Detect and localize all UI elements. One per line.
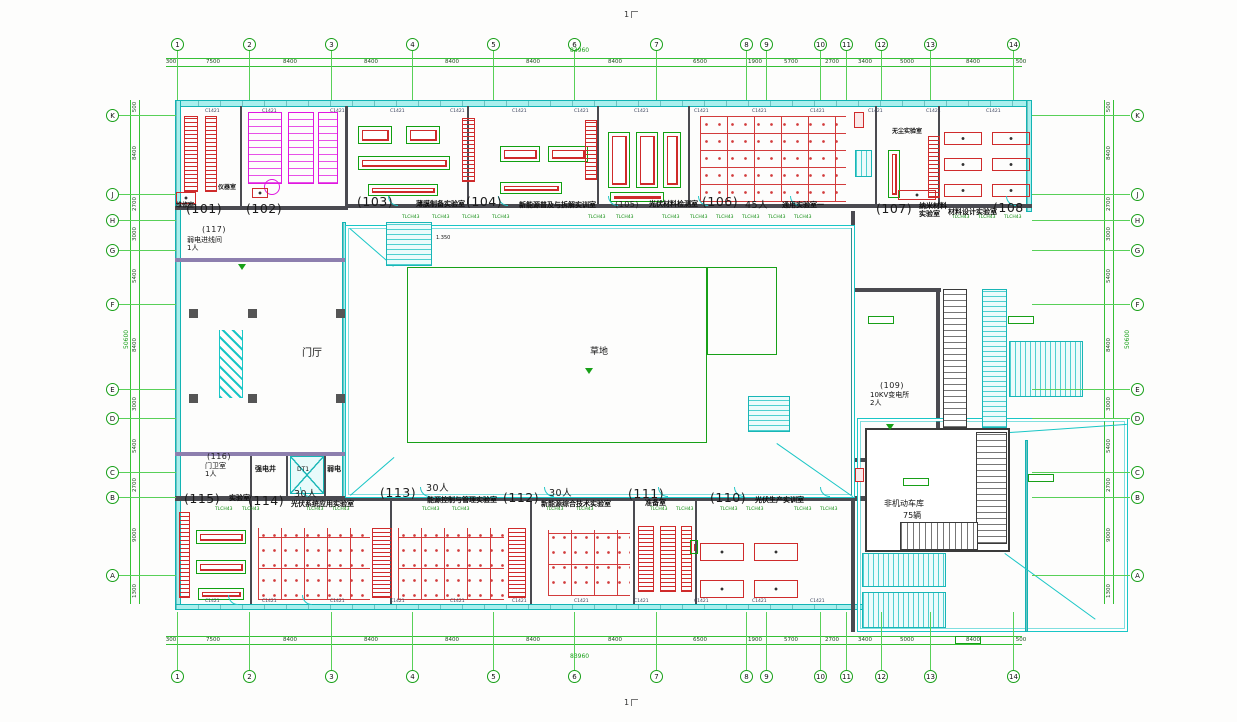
lab-bench (196, 530, 246, 544)
grid-line (119, 250, 176, 251)
exterior-wall (1025, 440, 1028, 632)
plan-label: 83960 (570, 654, 589, 661)
grid-bubble: 12 (875, 670, 888, 683)
grid-bubble: G (106, 244, 119, 257)
plan-label: 草地 (590, 347, 608, 357)
grid-line (846, 612, 847, 670)
column (189, 394, 198, 403)
lab-bench (754, 580, 798, 598)
ramp (862, 553, 946, 587)
wall-tag: C1421 (390, 599, 405, 604)
grid-bubble: A (1131, 569, 1144, 582)
grid-line (1032, 575, 1130, 576)
shelf-rack (638, 526, 654, 592)
plan-label: 50600 (1125, 330, 1132, 349)
wall-tag: TLCH43 (452, 507, 470, 512)
grid-line (1032, 220, 1130, 221)
dimension-label: 8400 (364, 59, 378, 65)
plan-label: 仪器室 (218, 185, 236, 192)
annotation-box (868, 316, 894, 324)
wall-tag: TLCH43 (768, 215, 786, 220)
toilet-stalls (248, 112, 282, 184)
room-name: 10KV变电所 2人 (870, 392, 909, 407)
grid-bubble: K (106, 109, 119, 122)
grid-bubble: 3 (325, 670, 338, 683)
room-number: (107) (876, 201, 912, 216)
dimension-label: 8400 (132, 338, 138, 352)
wall-tag: C1421 (810, 109, 825, 114)
wall-tag: TLCH43 (588, 215, 606, 220)
dimension-label: 1300 (132, 584, 138, 598)
grid-bubble: 3 (325, 38, 338, 51)
wall-tag: TLCH43 (662, 215, 680, 220)
sheet-mark-bottom: 1 (624, 698, 638, 707)
interior-wall (851, 288, 941, 292)
grid-bubble: 10 (814, 670, 827, 683)
wall-tag: TLCH43 (1004, 215, 1022, 220)
grid-bubble: F (1131, 298, 1144, 311)
dimension-label: 2700 (825, 637, 839, 643)
interior-wall (633, 501, 635, 604)
dimension-label: 1900 (748, 637, 762, 643)
dimension-line (166, 644, 1022, 645)
interior-wall (875, 106, 877, 206)
wall-tag: TLCH43 (462, 215, 480, 220)
grid-bubble: 9 (760, 670, 773, 683)
annotation-box (1008, 316, 1034, 324)
shelf-rack (660, 526, 676, 592)
room-number: (101) (186, 201, 222, 216)
room-number: (113) (380, 485, 416, 500)
dimension-label: 5700 (784, 59, 798, 65)
lab-bench (944, 132, 982, 145)
room-name: 光伏生产实训室 (755, 497, 804, 505)
wall-tag: C1421 (262, 109, 277, 114)
grid-line (1013, 612, 1014, 670)
desk-grid (700, 116, 846, 202)
grid-line (746, 612, 747, 670)
sheet-mark-top: 1 (624, 10, 638, 19)
lab-bench (358, 156, 450, 170)
grid-line (119, 575, 176, 576)
room-number: (104) (466, 194, 502, 209)
room-number: (108 (993, 200, 1024, 215)
room-name: 光伏系统应用实验室 (291, 501, 354, 509)
hydrant-box (855, 468, 864, 482)
wall-tag: TLCH43 (742, 215, 760, 220)
column (248, 394, 257, 403)
room-number: (110) (710, 490, 746, 505)
room-number: (114) (248, 493, 284, 508)
wall-tag: C1421 (450, 109, 465, 114)
shelf-rack (372, 528, 392, 598)
grid-line (119, 418, 176, 419)
plan-label: 门厅 (302, 348, 322, 360)
wall-tag: C1421 (574, 109, 589, 114)
grid-bubble: 5 (487, 38, 500, 51)
wall-tag: TLCH43 (716, 215, 734, 220)
room-name: 新能源综合技术实验室 (541, 501, 611, 509)
sheet-mark-number: 1 (624, 10, 629, 19)
plan-label: 非机动车库 (884, 499, 924, 508)
lab-bench (663, 132, 681, 188)
plan-label: 弱电 (327, 465, 341, 473)
grid-line (177, 612, 178, 670)
ramp (900, 522, 978, 550)
dimension-label: 2700 (1106, 197, 1112, 211)
column (336, 394, 345, 403)
grid-line (881, 612, 882, 670)
grid-line (656, 51, 657, 100)
grid-bubble: J (106, 188, 119, 201)
room-name: 通用实验室一 (782, 202, 824, 210)
interior-wall (688, 106, 690, 206)
desk-grid (548, 530, 630, 596)
level-marker (886, 424, 894, 430)
grid-line (119, 115, 176, 116)
grid-bubble: 10 (814, 38, 827, 51)
room-name: 薄膜制备实验室 (416, 201, 465, 209)
lab-bench (992, 132, 1030, 145)
lab-bench (636, 132, 658, 188)
grid-line (119, 304, 176, 305)
dimension-label: 3400 (858, 59, 872, 65)
grid-line (249, 612, 250, 670)
room-number: (109) (880, 381, 904, 390)
plan-label: 75辆 (903, 511, 921, 520)
grid-line (1032, 115, 1130, 116)
shelf-rack (585, 120, 597, 180)
grid-bubble: 7 (650, 670, 663, 683)
grid-bubble: 5 (487, 670, 500, 683)
wall-tag: TLCH43 (794, 215, 812, 220)
sheet-mark-number: 1 (624, 698, 629, 707)
level-marker (585, 368, 593, 374)
lab-bench (500, 182, 562, 194)
grid-bubble: H (1131, 214, 1144, 227)
shelf-rack (928, 136, 940, 198)
ramp (943, 289, 967, 428)
lab-bench (944, 184, 982, 197)
dimension-label: 2700 (132, 478, 138, 492)
grid-line (119, 497, 176, 498)
dimension-label: 8400 (1106, 338, 1112, 352)
grid-bubble: H (106, 214, 119, 227)
annotation-box (1028, 474, 1054, 482)
grid-bubble: C (1131, 466, 1144, 479)
ramp (862, 592, 946, 628)
wall-tag: TLCH43 (720, 507, 738, 512)
dimension-label: 7500 (206, 59, 220, 65)
sheet-mark-tick-icon (631, 699, 638, 706)
wall-tag: C1421 (330, 109, 345, 114)
grid-line (1032, 497, 1130, 498)
grid-line (119, 389, 176, 390)
room-number: (106) (702, 194, 738, 209)
lab-bench (252, 188, 268, 198)
grid-line (249, 51, 250, 100)
level-marker (238, 264, 246, 270)
plan-label: 强电井 (255, 465, 276, 473)
room-name: 准备室 (645, 500, 666, 508)
room-capacity: 30人 (426, 480, 449, 494)
dimension-label: 5000 (900, 637, 914, 643)
lab-bench (608, 132, 630, 188)
grid-line (177, 51, 178, 100)
grid-line (1032, 250, 1130, 251)
shelf-rack (681, 526, 692, 592)
toilet-stalls (288, 112, 314, 184)
dimension-label: 5700 (784, 637, 798, 643)
room-name: 门卫室 1人 (205, 463, 226, 478)
plan-label: 83960 (570, 48, 589, 55)
room-name: 能源控制与管理实验室 (427, 497, 497, 505)
grid-bubble: 1 (171, 38, 184, 51)
grid-line (766, 612, 767, 670)
dimension-label: 1300 (1106, 584, 1112, 598)
grid-bubble: 12 (875, 38, 888, 51)
sheet-mark-tick-icon (631, 11, 638, 18)
grid-line (1013, 51, 1014, 100)
interior-wall (240, 106, 242, 206)
dimension-label: 8400 (132, 146, 138, 160)
grid-bubble: 14 (1007, 670, 1020, 683)
dimension-label: 8400 (283, 637, 297, 643)
lab-bench (196, 560, 246, 574)
exterior-wall (175, 604, 867, 610)
lab-bench (992, 158, 1030, 171)
grid-bubble: F (106, 298, 119, 311)
grid-line (493, 51, 494, 100)
room-name: 实验室 (229, 495, 250, 503)
room-number: (103) (357, 194, 393, 209)
dimension-label: 5400 (132, 439, 138, 453)
staircase (748, 396, 790, 432)
grid-line (119, 472, 176, 473)
grid-bubble: C (106, 466, 119, 479)
grid-bubble: E (106, 383, 119, 396)
dimension-label: 5400 (132, 269, 138, 283)
room-number: (115) (184, 491, 220, 506)
grid-bubble: 2 (243, 38, 256, 51)
hydrant-box (854, 112, 864, 128)
grid-line (331, 612, 332, 670)
wall-tag: TLCH43 (492, 215, 510, 220)
plan-label: 1.350 (436, 236, 450, 242)
curtain-wall (219, 330, 243, 398)
grid-bubble: 11 (840, 670, 853, 683)
lab-bench (358, 126, 392, 144)
lawn-outline (407, 267, 707, 443)
grid-line (574, 612, 575, 670)
dimension-label: 2700 (132, 197, 138, 211)
grid-bubble: G (1131, 244, 1144, 257)
lab-bench (700, 543, 744, 561)
interior-wall (324, 456, 326, 496)
grid-line (1032, 304, 1130, 305)
wall-tag: C1421 (574, 599, 589, 604)
grid-bubble: 13 (924, 38, 937, 51)
floor-plan: 1 1 112233445566778899101011111212131314… (0, 0, 1237, 722)
staircase (386, 222, 432, 266)
staircase (855, 150, 872, 177)
room-number: (117) (202, 225, 226, 234)
grid-line (881, 51, 882, 100)
lawn-outline (707, 267, 777, 355)
dimension-label: 3000 (132, 397, 138, 411)
dimension-line (166, 66, 1022, 67)
grid-bubble: 8 (740, 38, 753, 51)
grid-line (846, 51, 847, 100)
interior-wall (286, 456, 288, 496)
dimension-label: 3000 (1106, 227, 1112, 241)
grid-bubble: 8 (740, 670, 753, 683)
room-number: (112) (503, 490, 539, 505)
desk-grid (398, 528, 504, 600)
toilet-stalls (318, 112, 338, 184)
shelf-rack (508, 528, 526, 598)
grid-bubble: 4 (406, 38, 419, 51)
shelf-rack (179, 512, 190, 598)
dimension-label: 300 (166, 637, 177, 643)
wall-tag: C1421 (694, 109, 709, 114)
grid-line (1032, 418, 1130, 419)
wall-tag: TLCH43 (616, 215, 634, 220)
wall-tag: C1421 (986, 109, 1001, 114)
dimension-label: 8400 (608, 637, 622, 643)
grid-bubble: 4 (406, 670, 419, 683)
wall-tag: C1421 (205, 109, 220, 114)
dimension-label: 8400 (445, 637, 459, 643)
dimension-label: 8400 (526, 637, 540, 643)
dimension-label: 8400 (966, 637, 980, 643)
grid-bubble: B (1131, 491, 1144, 504)
room-name: 弱电进线间 1人 (187, 237, 222, 252)
dimension-line (130, 100, 131, 604)
room-name: 新能源普及与拆解实训室 (519, 202, 596, 210)
dimension-label: 8400 (445, 59, 459, 65)
wall-tag: TLCH43 (820, 507, 838, 512)
wall-tag: C1421 (512, 599, 527, 604)
wall-tag: C1421 (512, 109, 527, 114)
lab-bench (700, 580, 744, 598)
room-number: (105) (615, 200, 639, 209)
wall-tag: TLCH43 (402, 215, 420, 220)
room-capacity: 45人 (745, 197, 768, 211)
wall-tag: C1421 (262, 599, 277, 604)
grid-bubble: 11 (840, 38, 853, 51)
wall-tag: C1421 (810, 599, 825, 604)
grid-line (331, 51, 332, 100)
dimension-label: 3000 (132, 227, 138, 241)
wall-tag: TLCH43 (690, 215, 708, 220)
shelf-rack (462, 118, 475, 182)
shelf-rack (205, 116, 217, 192)
dimension-label: 8400 (283, 59, 297, 65)
wall-tag: C1421 (450, 599, 465, 604)
interior-wall (597, 106, 599, 206)
wall-tag: C1421 (634, 599, 649, 604)
desk-grid (258, 528, 370, 600)
lab-bench (754, 543, 798, 561)
wall-tag: C1421 (390, 109, 405, 114)
exterior-wall (175, 100, 1032, 107)
grid-bubble: 7 (650, 38, 663, 51)
wall-tag: TLCH43 (650, 507, 668, 512)
lab-bench (548, 146, 588, 162)
dimension-label: 2700 (1106, 478, 1112, 492)
grid-line (493, 612, 494, 670)
room-name: 材料设计实验室 (948, 209, 997, 217)
room-name: 光伏材料检测室 (649, 201, 698, 209)
grid-bubble: A (106, 569, 119, 582)
dimension-label: 5400 (1106, 439, 1112, 453)
ramp (982, 289, 1007, 428)
room-number: (102) (246, 201, 282, 216)
annotation-box (903, 478, 929, 486)
dimension-label: 500 (132, 102, 138, 113)
interior-wall (345, 106, 348, 206)
room-capacity: 30人 (549, 485, 572, 499)
interior-wall (175, 258, 345, 262)
grid-bubble: B (106, 491, 119, 504)
dimension-label: 3400 (858, 637, 872, 643)
wall-tag: C1421 (694, 599, 709, 604)
wall-tag: TLCH43 (746, 507, 764, 512)
plan-label: 无尘实验室 (892, 129, 922, 136)
dimension-label: 8400 (364, 637, 378, 643)
dimension-label: 2700 (825, 59, 839, 65)
grid-line (119, 194, 176, 195)
grid-line (1032, 472, 1130, 473)
grid-line (412, 51, 413, 100)
lab-bench (406, 126, 440, 144)
grid-line (766, 51, 767, 100)
wall-tag: TLCH43 (794, 507, 812, 512)
shelf-rack (184, 116, 198, 192)
grid-bubble: 9 (760, 38, 773, 51)
grid-line (930, 612, 931, 670)
grid-bubble: E (1131, 383, 1144, 396)
dimension-label: 500 (1016, 637, 1027, 643)
dimension-label: 5000 (900, 59, 914, 65)
wall-tag: TLCH43 (676, 507, 694, 512)
room-capacity: 30人 (294, 486, 317, 500)
plan-label: 50600 (124, 330, 131, 349)
interior-wall (530, 501, 532, 604)
dimension-label: 9000 (132, 528, 138, 542)
lab-bench (690, 540, 698, 554)
grid-line (656, 612, 657, 670)
dimension-label: 8400 (966, 59, 980, 65)
dimension-label: 300 (166, 59, 177, 65)
wall-tag: C1421 (752, 599, 767, 604)
wall-tag: C1421 (205, 599, 220, 604)
grid-bubble: 1 (171, 670, 184, 683)
room-name: 纳米材料 实验室 (919, 203, 947, 218)
wall-tag: C1421 (926, 109, 941, 114)
dimension-label: 5400 (1106, 269, 1112, 283)
column (336, 309, 345, 318)
grid-line (1032, 194, 1130, 195)
grid-bubble: J (1131, 188, 1144, 201)
grid-line (574, 51, 575, 100)
wall-tag: C1421 (330, 599, 345, 604)
grid-line (119, 220, 176, 221)
dimension-label: 6500 (693, 59, 707, 65)
grid-line (746, 51, 747, 100)
dimension-line (139, 100, 140, 604)
